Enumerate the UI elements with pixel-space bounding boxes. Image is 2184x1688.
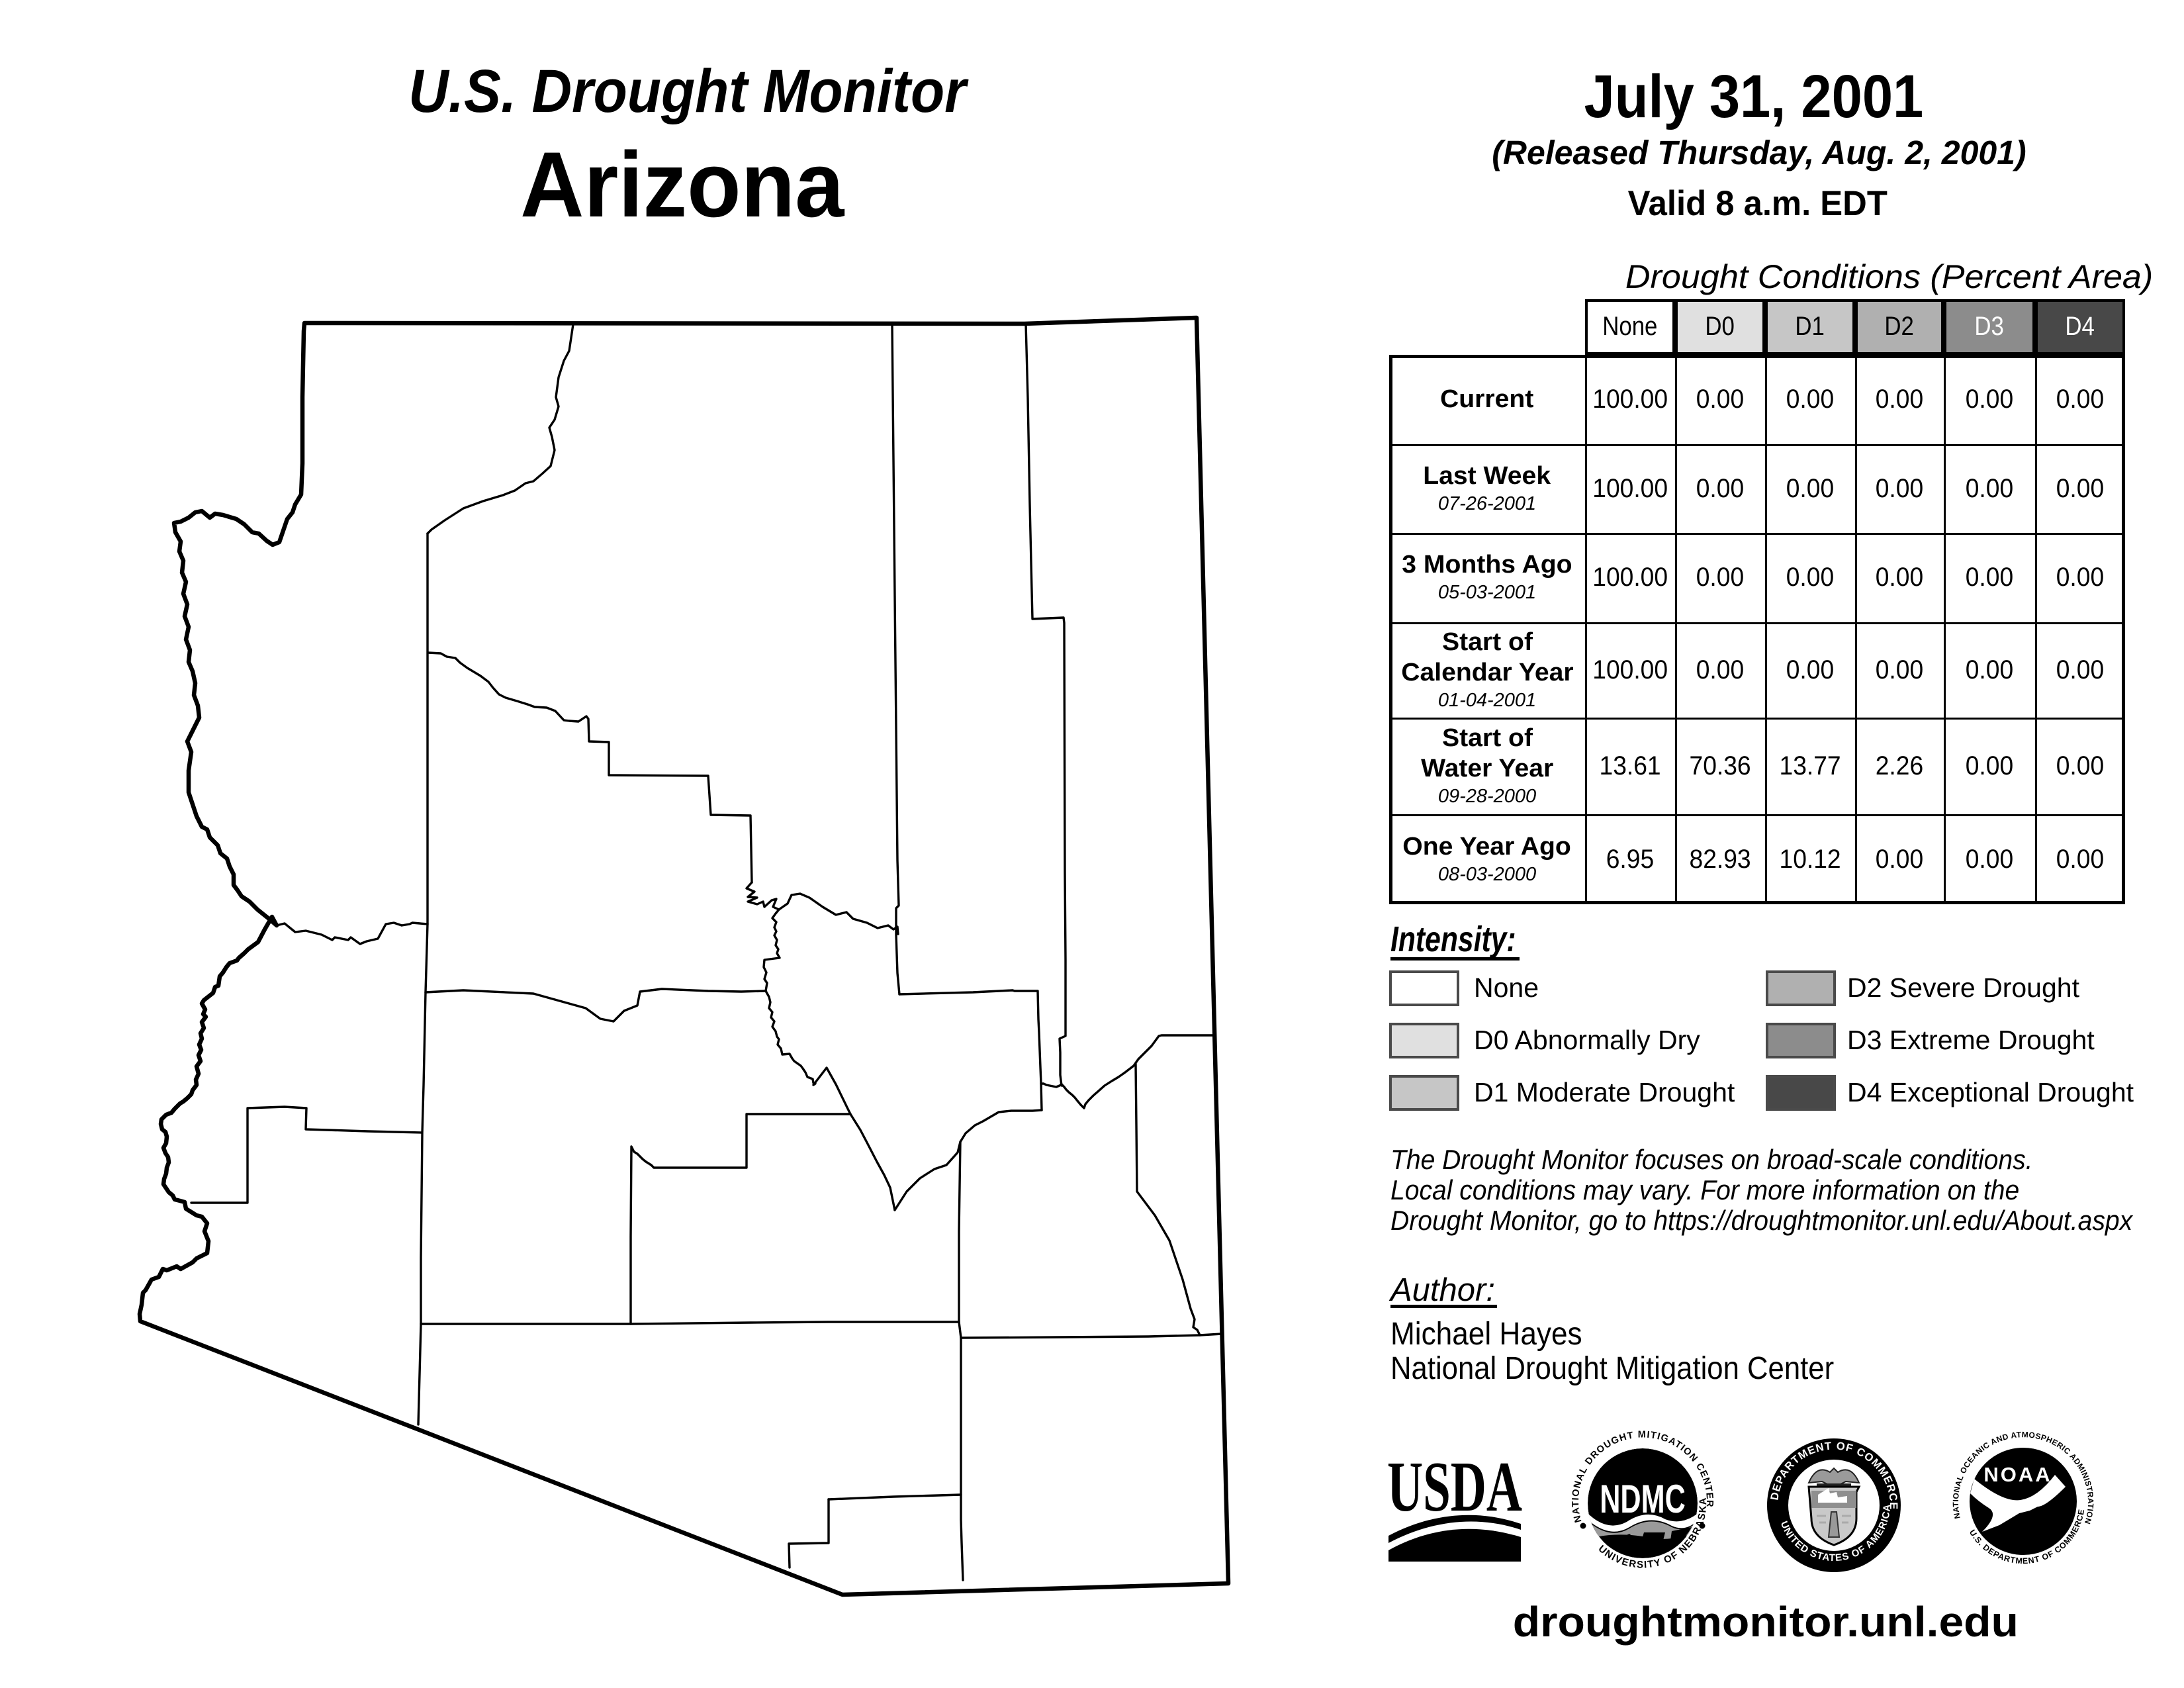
svg-text:USDA: USDA <box>1387 1448 1522 1526</box>
svg-text:NDMC: NDMC <box>1600 1477 1686 1522</box>
svg-text:NOAA: NOAA <box>1983 1463 2052 1486</box>
